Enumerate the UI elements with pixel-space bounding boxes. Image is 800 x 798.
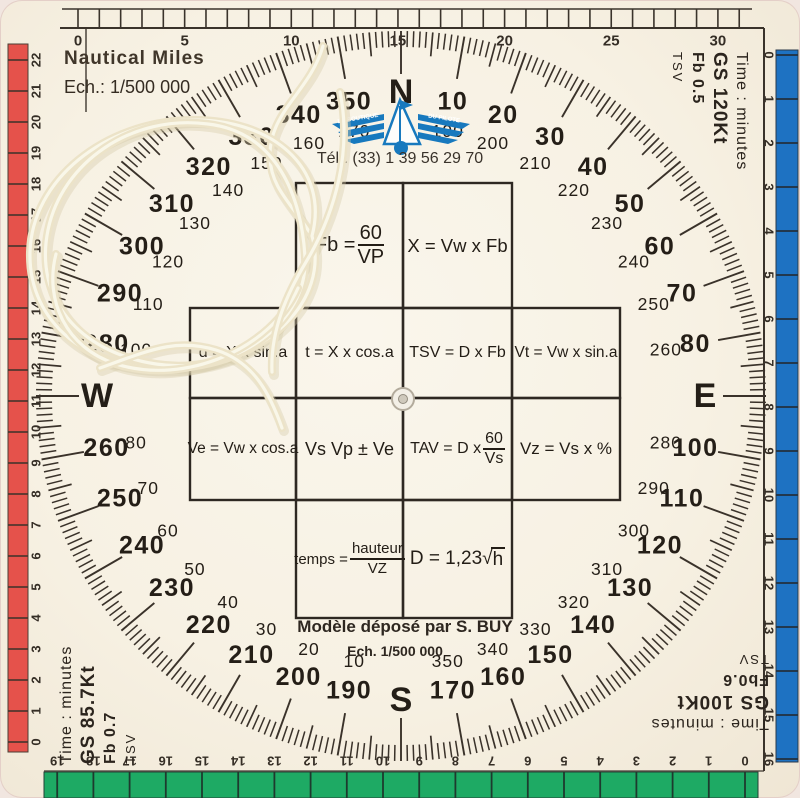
compass-outer-degree: 200 xyxy=(276,663,322,691)
svg-text:21: 21 xyxy=(29,84,44,98)
svg-text:19: 19 xyxy=(29,146,44,160)
formula-cell-drift: d = X x sin.a xyxy=(190,308,296,398)
svg-text:14: 14 xyxy=(29,300,44,315)
compass-inner-degree: 80 xyxy=(125,433,146,453)
speed-block-bottom-left: Time : minutes GS 85.7Kt Fb 0.7 TSV xyxy=(58,589,138,764)
compass-outer-degree: 250 xyxy=(97,484,143,512)
compass-inner-degree: 240 xyxy=(618,252,650,272)
compass-outer-degree: 20 xyxy=(488,101,519,129)
formula-text: Vt = Vw x sin.a xyxy=(515,344,618,362)
compass-inner-degree: 70 xyxy=(137,478,158,498)
speed-block-bottom-right: Time : minutes GS 100Kt Fb0.6 TSV xyxy=(594,652,769,732)
compass-outer-degree: 340 xyxy=(276,101,322,129)
svg-text:1: 1 xyxy=(705,754,712,769)
formula-cell-ve: Ve = Vw x cos.a xyxy=(190,398,296,500)
scale-title: Nautical Miles xyxy=(64,48,205,70)
formula-cell-distance: D = 1,23 √h xyxy=(403,500,512,618)
compass-outer-degree: 320 xyxy=(186,153,232,181)
scale-note: Nautical Miles Ech.: 1/500 000 xyxy=(64,48,205,98)
formula-cell-vz: Vz = Vs x % xyxy=(512,398,620,500)
ground-speed-label: GS 100Kt xyxy=(594,690,769,712)
radical-argument: h xyxy=(491,547,506,571)
navigation-plotter-card: 2221201918171615141312111098765432100123… xyxy=(0,0,800,798)
formula-text: Vs Vp ± Ve xyxy=(305,439,394,460)
svg-text:4: 4 xyxy=(596,754,604,769)
compass-inner-degree: 280 xyxy=(650,433,682,453)
formula-text: Vz = Vs x % xyxy=(520,439,612,459)
compass-inner-degree: 230 xyxy=(591,213,623,233)
compass-inner-degree: 120 xyxy=(152,252,184,272)
formula-text: X = Vw x Fb xyxy=(407,235,507,257)
compass-inner-degree: 310 xyxy=(591,559,623,579)
compass-inner-degree: 260 xyxy=(650,339,682,359)
compass-inner-degree: 250 xyxy=(638,294,670,314)
compass-outer-degree: 260 xyxy=(83,434,129,462)
compass-outer-degree: 350 xyxy=(326,88,372,116)
svg-text:16: 16 xyxy=(159,754,173,769)
time-minutes-label: Time : minutes xyxy=(58,589,76,764)
compass-cardinal-E: E xyxy=(694,377,717,415)
formula-cell-tsv: TSV = D x Fb xyxy=(403,308,512,398)
fraction-denominator: VZ xyxy=(368,560,387,577)
base-factor-label: Fb 0.5 xyxy=(688,52,706,227)
svg-text:18: 18 xyxy=(29,177,44,191)
base-factor-label: Fb 0.7 xyxy=(102,589,120,764)
fraction-numerator: hauteur xyxy=(350,541,405,560)
formula-text: t = X x cos.a xyxy=(305,344,393,362)
svg-text:16: 16 xyxy=(29,239,44,253)
tsv-label: TSV xyxy=(123,589,138,764)
svg-text:0: 0 xyxy=(741,754,748,769)
svg-text:0: 0 xyxy=(29,738,44,745)
compass-outer-degree: 330 xyxy=(228,123,274,151)
compass-cardinal-W: W xyxy=(81,377,114,415)
phone-number: Tél.: (33) 1 39 56 29 70 xyxy=(240,150,560,168)
svg-text:5: 5 xyxy=(29,583,44,590)
formula-text: D = 1,23 xyxy=(410,548,482,570)
svg-text:0: 0 xyxy=(74,33,82,50)
compass-inner-degree: 60 xyxy=(157,521,178,541)
svg-text:20: 20 xyxy=(29,115,44,129)
svg-text:14: 14 xyxy=(230,754,245,769)
photo-stage: 2221201918171615141312111098765432100123… xyxy=(0,0,800,798)
top-nautical-miles-ruler: 051015202530 xyxy=(60,9,764,50)
svg-text:9: 9 xyxy=(29,459,44,466)
compass-outer-degree: 160 xyxy=(480,663,526,691)
compass-inner-degree: 300 xyxy=(618,521,650,541)
svg-text:2: 2 xyxy=(29,676,44,683)
compass-inner-degree: 130 xyxy=(179,213,211,233)
compass-outer-degree: 30 xyxy=(535,123,566,151)
formula-text: Fb = xyxy=(315,234,356,257)
compass-inner-degree: 110 xyxy=(133,294,164,314)
fraction-denominator: VP xyxy=(357,246,384,269)
compass-outer-degree: 80 xyxy=(680,330,711,358)
fraction-denominator: Vs xyxy=(485,450,504,468)
compass-inner-degree: 100 xyxy=(120,339,152,359)
svg-text:15: 15 xyxy=(390,33,407,50)
svg-text:15: 15 xyxy=(29,270,44,284)
compass-inner-degree: 40 xyxy=(217,592,238,612)
formula-text: Ve = Vw x cos.a xyxy=(188,440,299,458)
formula-text: d = X x sin.a xyxy=(199,344,288,362)
time-minutes-label: Time : minutes xyxy=(594,714,769,732)
svg-text:8: 8 xyxy=(29,490,44,497)
svg-text:15: 15 xyxy=(195,754,209,769)
time-minutes-label: Time : minutes xyxy=(732,52,750,227)
formula-text: temps = xyxy=(294,551,348,568)
base-factor-label: Fb0.6 xyxy=(594,670,769,688)
svg-text:1: 1 xyxy=(29,707,44,714)
speed-block-top-right: Time : minutes GS 120Kt Fb 0.5 TSV xyxy=(670,52,750,227)
compass-inner-degree: 290 xyxy=(638,478,670,498)
svg-text:30: 30 xyxy=(710,33,727,50)
tsv-label: TSV xyxy=(594,652,769,667)
fraction-numerator: 60 xyxy=(483,430,505,450)
formula-cell-fb: Fb = 60VP xyxy=(296,183,403,308)
fraction-numerator: 60 xyxy=(358,222,384,246)
svg-text:13: 13 xyxy=(267,754,281,769)
formula-text: TAV = D x xyxy=(410,440,481,458)
svg-text:2: 2 xyxy=(669,754,676,769)
svg-text:7: 7 xyxy=(488,754,495,769)
formula-text: TSV = D x Fb xyxy=(409,344,505,362)
formula-cell-temps: temps = hauteurVZ xyxy=(296,500,403,618)
svg-text:5: 5 xyxy=(560,754,567,769)
compass-outer-degree: 170 xyxy=(430,676,476,704)
compass-outer-degree: 40 xyxy=(578,153,609,181)
svg-text:10: 10 xyxy=(283,33,300,50)
svg-text:7: 7 xyxy=(29,521,44,528)
compass-cardinal-S: S xyxy=(390,681,413,719)
compass-outer-degree: 220 xyxy=(186,611,232,639)
formula-cell-tav: TAV = D x 60Vs xyxy=(403,398,512,500)
svg-text:25: 25 xyxy=(603,33,620,50)
compass-inner-degree: 140 xyxy=(212,180,244,200)
footer-scale-ratio: Ech. 1/500 000 xyxy=(250,643,540,659)
svg-text:20: 20 xyxy=(496,33,513,50)
svg-text:3: 3 xyxy=(29,645,44,652)
ground-speed-label: GS 120Kt xyxy=(708,52,730,227)
formula-cell-vt: Vt = Vw x sin.a xyxy=(512,308,620,398)
compass-outer-degree: 190 xyxy=(326,676,372,704)
formula-cell-vs: Vs Vp ± Ve xyxy=(296,398,403,500)
svg-text:4: 4 xyxy=(29,614,44,622)
tsv-label: TSV xyxy=(670,52,685,227)
compass-inner-degree: 50 xyxy=(184,559,205,579)
compass-inner-degree: 320 xyxy=(558,592,590,612)
svg-text:6: 6 xyxy=(29,552,44,559)
svg-text:3: 3 xyxy=(633,754,640,769)
svg-text:5: 5 xyxy=(180,33,188,50)
formula-cell-t: t = X x cos.a xyxy=(296,308,403,398)
compass-outer-degree: 70 xyxy=(667,280,698,308)
formula-cell-x: X = Vw x Fb xyxy=(403,183,512,308)
svg-text:6: 6 xyxy=(524,754,531,769)
compass-inner-degree: 220 xyxy=(558,180,590,200)
compass-outer-degree: 140 xyxy=(570,611,616,639)
svg-text:12: 12 xyxy=(303,754,317,769)
scale-ratio: Ech.: 1/500 000 xyxy=(64,77,205,98)
svg-text:22: 22 xyxy=(29,53,44,67)
svg-text:17: 17 xyxy=(29,208,44,222)
ground-speed-label: GS 85.7Kt xyxy=(78,589,100,764)
svg-text:11: 11 xyxy=(340,754,354,769)
compass-outer-degree: 10 xyxy=(438,88,469,116)
registered-model-note: Modèle déposé par S. BUY xyxy=(250,617,560,637)
